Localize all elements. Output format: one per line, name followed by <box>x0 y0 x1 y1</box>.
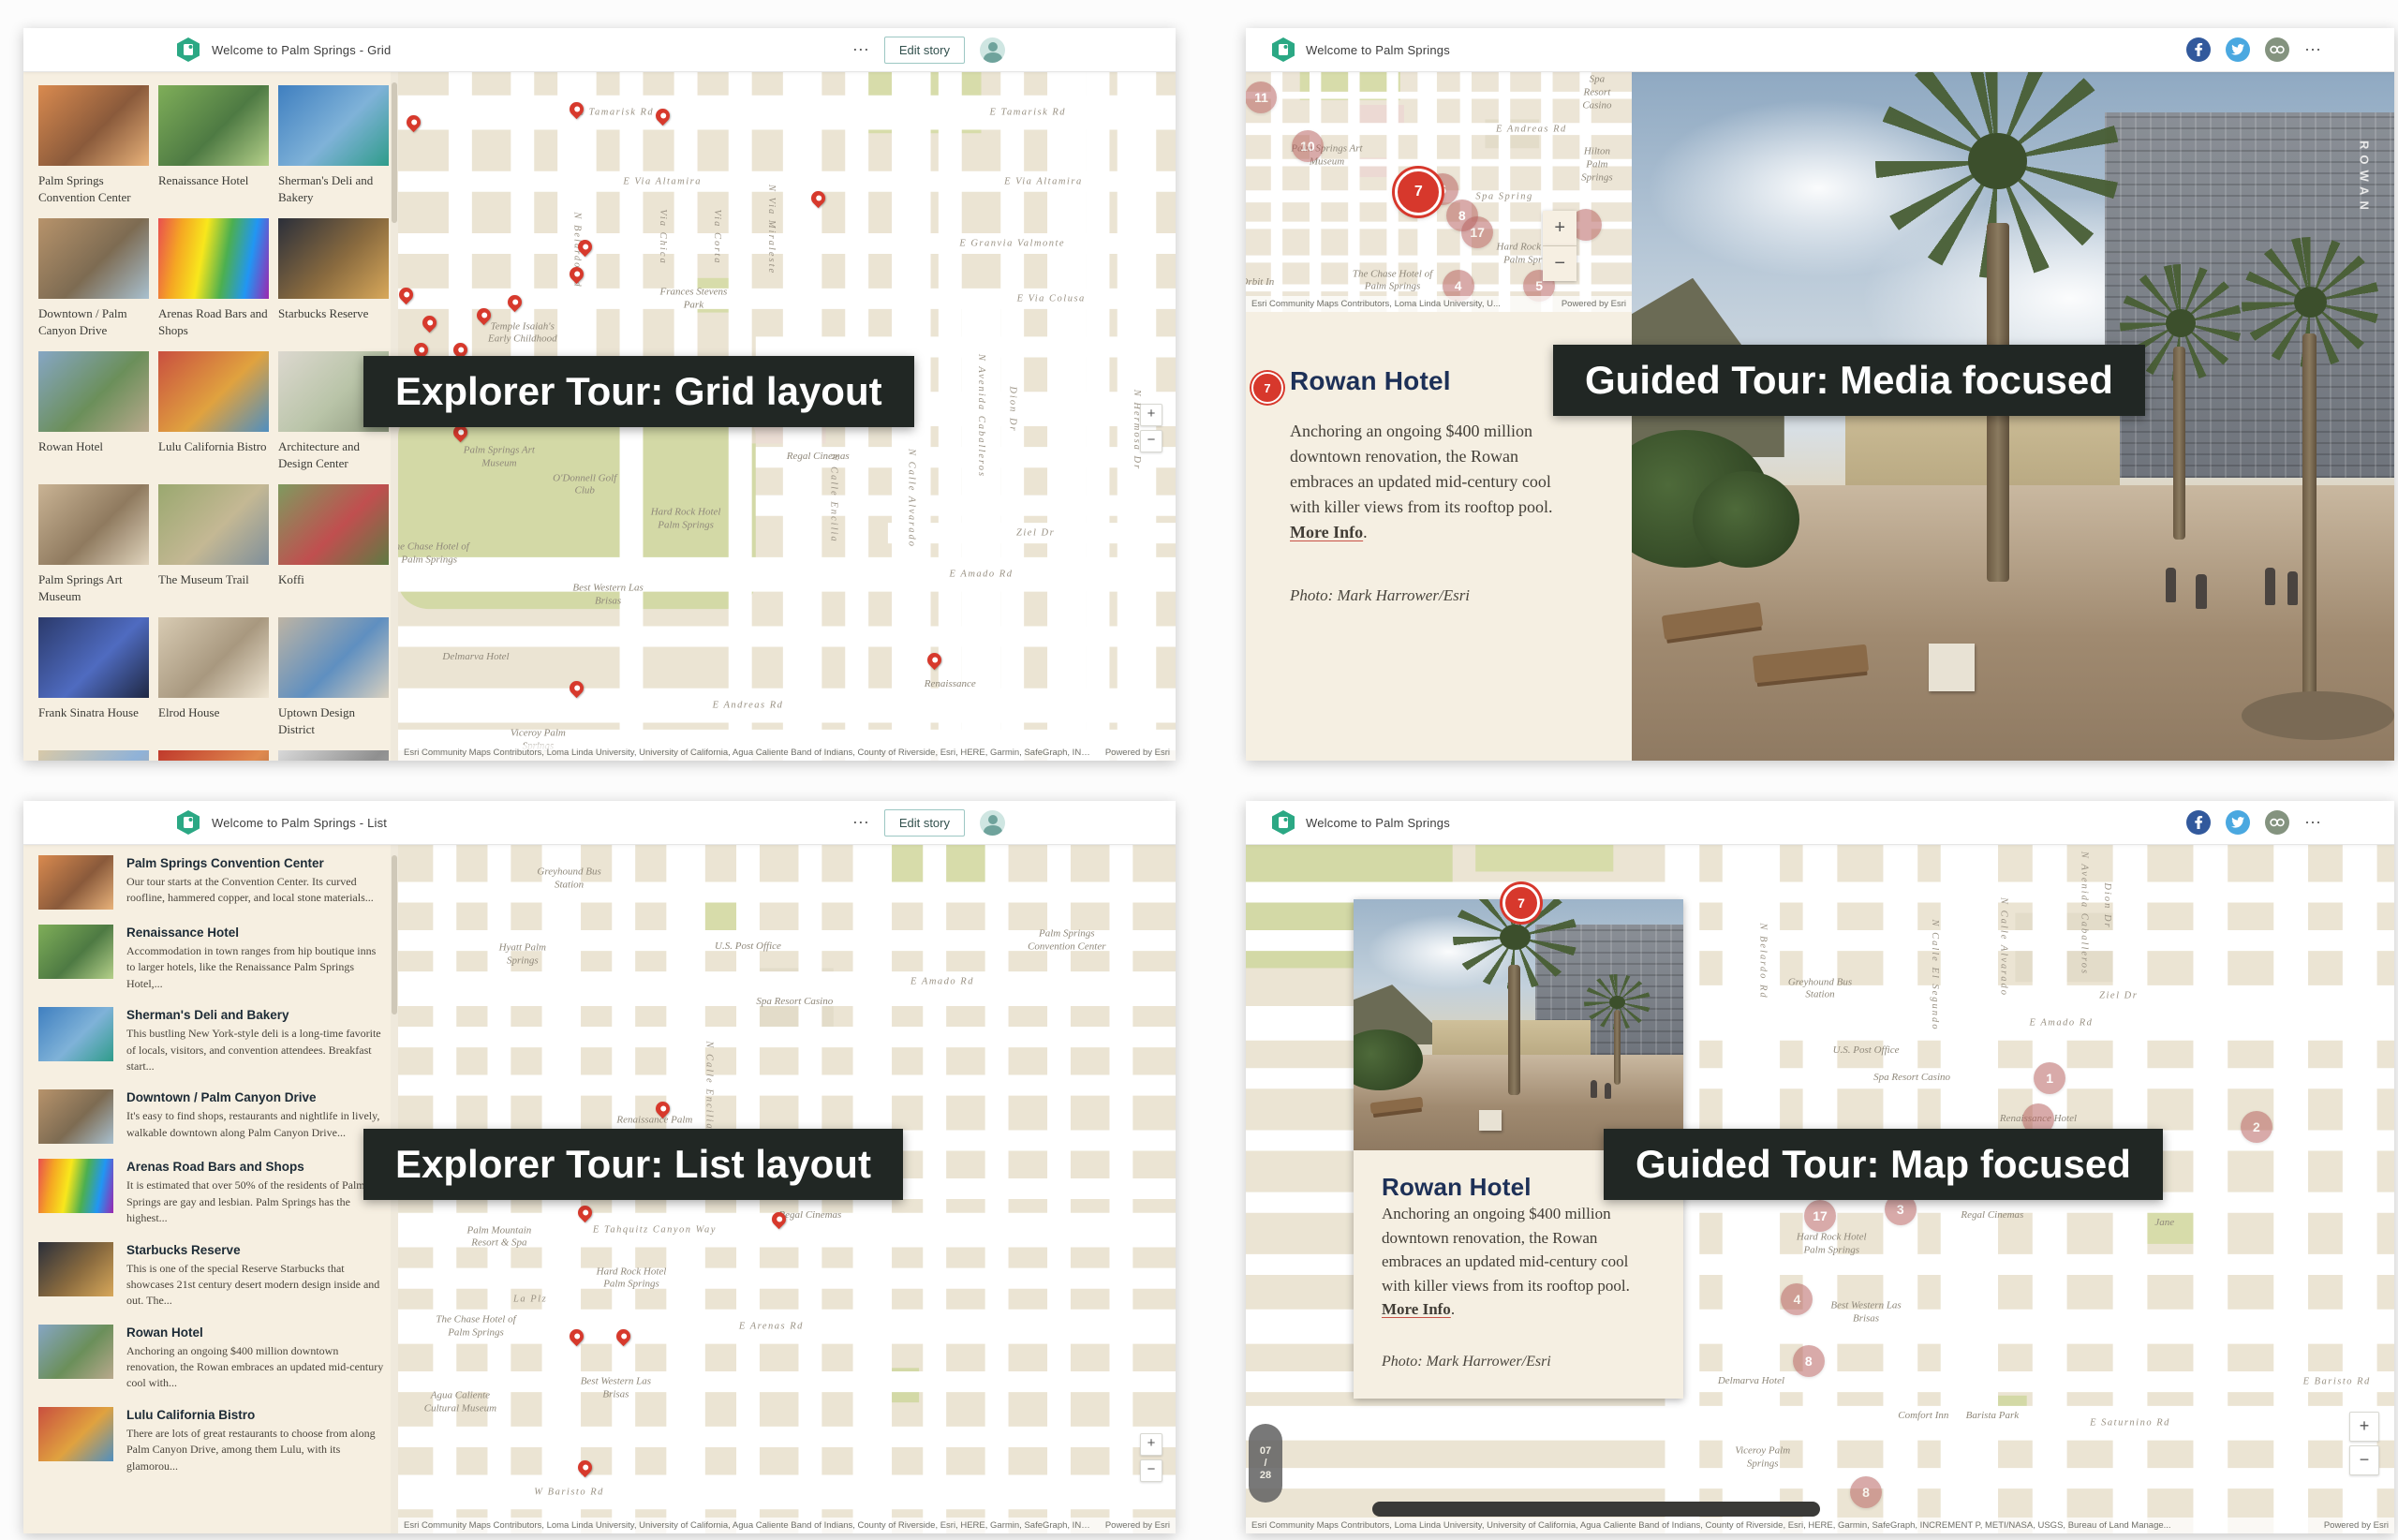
place-description: It is estimated that over 50% of the res… <box>126 1177 385 1226</box>
place-thumbnail <box>38 1007 113 1061</box>
facebook-icon[interactable] <box>2186 37 2211 62</box>
list-item[interactable]: Arenas Road Bars and Shops It is estimat… <box>38 1159 385 1226</box>
media-scrubber[interactable] <box>1372 1502 1820 1517</box>
zoom-out-button[interactable]: − <box>1140 1459 1162 1482</box>
place-thumbnail <box>38 1089 113 1144</box>
storymaps-logo-icon <box>1270 37 1296 63</box>
stop-number-badge: 7 <box>1502 884 1540 922</box>
grid-item[interactable]: The Museum Trail <box>158 484 269 604</box>
map-attribution: Esri Community Maps Contributors, Loma L… <box>1246 1518 2394 1533</box>
zoom-in-button[interactable]: + <box>2349 1412 2379 1442</box>
grid-item[interactable] <box>158 750 269 761</box>
map-attribution: Esri Community Maps Contributors, Loma L… <box>398 1518 1176 1533</box>
more-menu-icon[interactable]: ⋯ <box>852 814 869 831</box>
grid-sidebar: Palm Springs Convention Center Renaissan… <box>23 71 398 761</box>
twitter-icon[interactable] <box>2226 37 2250 62</box>
powered-by-esri: Powered by Esri <box>1105 1518 1170 1533</box>
grid-item[interactable]: Renaissance Hotel <box>158 85 269 205</box>
grid-item[interactable]: Koffi <box>278 484 389 604</box>
stop-description: Anchoring an ongoing $400 million downto… <box>1382 1202 1655 1322</box>
grid-item[interactable] <box>38 750 149 761</box>
list-item[interactable]: Rowan Hotel Anchoring an ongoing $400 mi… <box>38 1325 385 1392</box>
place-title: Rowan Hotel <box>126 1325 385 1340</box>
place-thumbnail <box>38 351 149 432</box>
map-attribution: Esri Community Maps Contributors, Loma L… <box>398 745 1176 761</box>
grid-item[interactable]: Arenas Road Bars and Shops <box>158 218 269 338</box>
avatar[interactable] <box>980 37 1005 63</box>
place-description: Accommodation in town ranges from hip bo… <box>126 943 385 992</box>
zoom-control: + − <box>2349 1412 2379 1475</box>
stop-marker[interactable]: 2 <box>2241 1111 2272 1143</box>
grid-item[interactable]: Uptown Design District <box>278 617 389 737</box>
story-title: Welcome to Palm Springs - Grid <box>212 43 391 57</box>
zoom-control: + − <box>1543 211 1576 281</box>
list-sidebar: Palm Springs Convention Center Our tour … <box>23 844 398 1533</box>
place-title: Sherman's Deli and Bakery <box>126 1008 385 1022</box>
place-description: Anchoring an ongoing $400 million downto… <box>126 1343 385 1392</box>
grid-item[interactable] <box>278 750 389 761</box>
more-info-link[interactable]: More Info <box>1382 1300 1451 1318</box>
place-thumbnail <box>278 617 389 698</box>
stop-photo <box>1354 899 1683 1150</box>
story-header: Welcome to Palm Springs ⋯ <box>1246 801 2394 845</box>
stop-name: Rowan Hotel <box>1290 366 1585 396</box>
link-icon[interactable] <box>2265 37 2289 62</box>
place-thumbnail <box>38 1325 113 1379</box>
annotation-label: Explorer Tour: Grid layout <box>363 356 914 427</box>
panel-guided-map: Welcome to Palm Springs ⋯ <box>1246 801 2394 1533</box>
grid-item[interactable]: Lulu California Bistro <box>158 351 269 471</box>
place-title: Lulu California Bistro <box>126 1408 385 1422</box>
list-item[interactable]: Palm Springs Convention Center Our tour … <box>38 855 385 910</box>
place-thumbnail <box>158 484 269 565</box>
list-item[interactable]: Lulu California Bistro There are lots of… <box>38 1407 385 1474</box>
list-item[interactable]: Renaissance Hotel Accommodation in town … <box>38 925 385 992</box>
stop-marker[interactable]: 8 <box>1793 1345 1825 1377</box>
place-title: Palm Springs Convention Center <box>38 172 149 205</box>
powered-by-esri: Powered by Esri <box>2324 1518 2389 1533</box>
place-thumbnail <box>38 1407 113 1461</box>
place-title: Renaissance Hotel <box>126 925 385 940</box>
place-title: Arenas Road Bars and Shops <box>158 305 269 338</box>
place-thumbnail <box>38 218 149 299</box>
grid-item[interactable]: Palm Springs Convention Center <box>38 85 149 205</box>
powered-by-esri: Powered by Esri <box>1562 296 1626 312</box>
edit-story-button[interactable]: Edit story <box>884 37 965 64</box>
stop-marker[interactable]: 4 <box>1781 1283 1813 1315</box>
stop-photo: ROWAN <box>1632 71 2394 761</box>
photo-credit: Photo: Mark Harrower/Esri <box>1382 1354 1655 1370</box>
place-title: Downtown / Palm Canyon Drive <box>38 305 149 338</box>
overview-map[interactable]: E Andreas Rd Spa Spring Palm Springs Art… <box>1246 71 1632 312</box>
storymaps-logo-icon <box>175 37 201 63</box>
stop-counter: 07/28 <box>1249 1424 1282 1503</box>
annotation-label: Explorer Tour: List layout <box>363 1129 903 1200</box>
storymaps-logo-icon <box>1270 809 1296 836</box>
place-thumbnail <box>278 85 389 166</box>
place-thumbnail <box>158 218 269 299</box>
place-title: Renaissance Hotel <box>158 172 269 189</box>
place-title: Starbucks Reserve <box>126 1243 385 1257</box>
zoom-control: + − <box>1140 404 1162 452</box>
grid-item[interactable]: Downtown / Palm Canyon Drive <box>38 218 149 338</box>
annotation-label: Guided Tour: Map focused <box>1604 1129 2163 1200</box>
story-header: Welcome to Palm Springs - List ⋯ Edit st… <box>23 801 1176 845</box>
panel-guided-media: Welcome to Palm Springs ⋯ 7 Rowan Hotel … <box>1246 28 2394 761</box>
story-title: Welcome to Palm Springs - List <box>212 816 387 830</box>
place-thumbnail <box>158 617 269 698</box>
zoom-out-button[interactable]: − <box>1543 246 1576 281</box>
place-title: Palm Springs Art Museum <box>38 571 149 604</box>
place-title: Koffi <box>278 571 389 588</box>
place-title: Palm Springs Convention Center <box>126 856 385 870</box>
grid-item[interactable]: Elrod House <box>158 617 269 737</box>
zoom-control: + − <box>1140 1433 1162 1482</box>
story-header: Welcome to Palm Springs ⋯ <box>1246 28 2394 72</box>
place-thumbnail <box>38 484 149 565</box>
grid-item[interactable]: Rowan Hotel <box>38 351 149 471</box>
place-title: Downtown / Palm Canyon Drive <box>126 1090 385 1104</box>
place-title: Lulu California Bistro <box>158 438 269 455</box>
panel-explorer-grid: Welcome to Palm Springs - Grid ⋯ Edit st… <box>23 28 1176 761</box>
place-title: Architecture and Design Center <box>278 438 389 471</box>
place-thumbnail <box>38 85 149 166</box>
list-item[interactable]: Sherman's Deli and Bakery This bustling … <box>38 1007 385 1074</box>
place-thumbnail <box>278 750 389 761</box>
zoom-in-button[interactable]: + <box>1140 404 1162 426</box>
stop-number-badge: 7 <box>1251 372 1283 404</box>
place-title: Sherman's Deli and Bakery <box>278 172 389 205</box>
story-title: Welcome to Palm Springs <box>1306 43 1450 57</box>
place-thumbnail <box>38 855 113 910</box>
place-description: Our tour starts at the Convention Center… <box>126 874 385 907</box>
stop-marker[interactable]: 8 <box>1850 1476 1882 1508</box>
grid-item[interactable]: Sherman's Deli and Bakery <box>278 85 389 205</box>
place-title: Starbucks Reserve <box>278 305 389 322</box>
powered-by-esri: Powered by Esri <box>1105 745 1170 761</box>
place-thumbnail <box>158 750 269 761</box>
screenshot-collage: Welcome to Palm Springs - Grid ⋯ Edit st… <box>0 0 2398 1540</box>
place-title: Rowan Hotel <box>38 438 149 455</box>
place-thumbnail <box>158 85 269 166</box>
zoom-in-button[interactable]: + <box>1543 211 1576 246</box>
grid-item[interactable]: Frank Sinatra House <box>38 617 149 737</box>
place-title: Arenas Road Bars and Shops <box>126 1160 385 1174</box>
twitter-icon[interactable] <box>2226 810 2250 835</box>
grid-item[interactable]: Starbucks Reserve <box>278 218 389 338</box>
grid-item[interactable]: Palm Springs Art Museum <box>38 484 149 604</box>
more-menu-icon[interactable]: ⋯ <box>852 41 869 58</box>
zoom-in-button[interactable]: + <box>1140 1433 1162 1456</box>
zoom-out-button[interactable]: − <box>2349 1445 2379 1475</box>
stop-description: Anchoring an ongoing $400 million downto… <box>1290 419 1582 545</box>
place-thumbnail <box>38 925 113 979</box>
stop-marker[interactable]: 7 <box>1395 169 1442 215</box>
map-attribution: Esri Community Maps Contributors, Loma L… <box>1246 296 1632 312</box>
place-thumbnail <box>158 351 269 432</box>
zoom-out-button[interactable]: − <box>1140 430 1162 452</box>
facebook-icon[interactable] <box>2186 810 2211 835</box>
annotation-label: Guided Tour: Media focused <box>1553 345 2145 416</box>
story-title: Welcome to Palm Springs <box>1306 816 1450 830</box>
more-info-link[interactable]: More Info <box>1290 523 1363 541</box>
stop-marker[interactable]: 10 <box>1292 130 1324 162</box>
place-description: This is one of the special Reserve Starb… <box>126 1261 385 1310</box>
place-description: This bustling New York-style deli is a l… <box>126 1026 385 1074</box>
link-icon[interactable] <box>2265 810 2289 835</box>
place-thumbnail <box>38 617 149 698</box>
list-item[interactable]: Downtown / Palm Canyon Drive It's easy t… <box>38 1089 385 1144</box>
more-menu-icon[interactable]: ⋯ <box>2304 814 2321 831</box>
rowan-sign: ROWAN <box>2358 141 2372 215</box>
storymaps-logo-icon <box>175 809 201 836</box>
story-header: Welcome to Palm Springs - Grid ⋯ Edit st… <box>23 28 1176 72</box>
place-description: There are lots of great restaurants to c… <box>126 1426 385 1474</box>
place-description: It's easy to find shops, restaurants and… <box>126 1108 385 1141</box>
avatar[interactable] <box>980 810 1005 836</box>
list-item[interactable]: Starbucks Reserve This is one of the spe… <box>38 1242 385 1310</box>
place-thumbnail <box>38 1159 113 1213</box>
panel-explorer-list: Welcome to Palm Springs - List ⋯ Edit st… <box>23 801 1176 1533</box>
more-menu-icon[interactable]: ⋯ <box>2304 41 2321 58</box>
place-thumbnail <box>278 218 389 299</box>
photo-credit: Photo: Mark Harrower/Esri <box>1290 586 1585 605</box>
place-thumbnail <box>38 750 149 761</box>
edit-story-button[interactable]: Edit story <box>884 809 965 837</box>
place-title: Uptown Design District <box>278 704 389 737</box>
place-title: Frank Sinatra House <box>38 704 149 721</box>
place-title: Elrod House <box>158 704 269 721</box>
place-thumbnail <box>278 484 389 565</box>
place-thumbnail <box>38 1242 113 1296</box>
place-title: The Museum Trail <box>158 571 269 588</box>
